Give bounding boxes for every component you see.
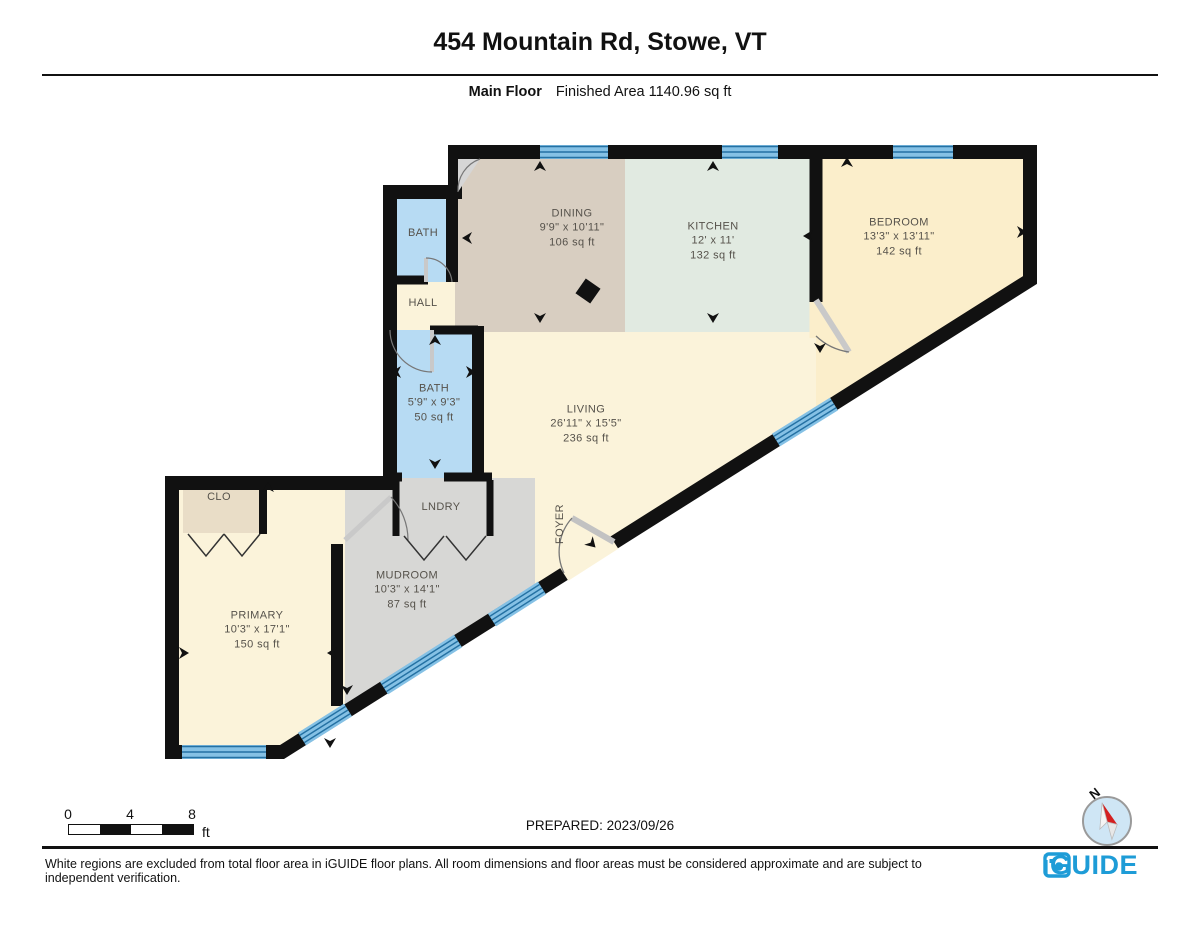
room-dims: 10'3" x 17'1" <box>224 623 290 637</box>
room-name: KITCHEN <box>687 220 738 234</box>
room-label-foyer: FOYER <box>553 504 567 544</box>
room-area: 142 sq ft <box>863 244 934 258</box>
room-area: 132 sq ft <box>687 248 738 262</box>
room-label-kitchen: KITCHEN 12' x 11' 132 sq ft <box>687 220 738 263</box>
room-label-mudroom: MUDROOM 10'3" x 14'1" 87 sq ft <box>374 569 440 612</box>
room-name: PRIMARY <box>224 609 290 623</box>
room-dims: 5'9" x 9'3" <box>408 396 461 410</box>
room-name: LNDRY <box>421 500 460 514</box>
room-dims: 26'11" x 15'5" <box>550 417 621 431</box>
room-dims: 9'9" x 10'11" <box>540 221 605 235</box>
room-name: LIVING <box>550 403 621 417</box>
room-name: CLO <box>207 490 231 504</box>
scale-tick-8: 8 <box>188 806 196 822</box>
scale-tick-labels: 0 4 8 <box>60 806 220 822</box>
compass-icon <box>1083 797 1131 845</box>
room-label-dining: DINING 9'9" x 10'11" 106 sq ft <box>540 207 605 250</box>
scale-unit: ft <box>202 824 210 840</box>
room-area: 50 sq ft <box>408 410 461 424</box>
floor-plan-svg <box>0 0 1200 927</box>
room-label-bedroom: BEDROOM 13'3" x 13'11" 142 sq ft <box>863 216 934 259</box>
room-area: 87 sq ft <box>374 597 440 611</box>
scale-tick-4: 4 <box>126 806 134 822</box>
window-primary <box>182 745 266 759</box>
room-label-bath-upper: BATH <box>408 226 438 240</box>
room-name: BATH <box>408 226 438 240</box>
room-area: 150 sq ft <box>224 637 290 651</box>
room-name: MUDROOM <box>374 569 440 583</box>
room-label-closet: CLO <box>207 490 231 504</box>
room-name: HALL <box>408 296 437 310</box>
room-area: 236 sq ft <box>550 431 621 445</box>
scale-bar-graphic <box>68 824 194 835</box>
room-dims: 13'3" x 13'11" <box>863 230 934 244</box>
room-dims: 10'3" x 14'1" <box>374 583 440 597</box>
iguide-logo-icon <box>1042 850 1072 880</box>
scale-tick-0: 0 <box>64 806 72 822</box>
footer-divider <box>42 846 1158 849</box>
room-label-laundry: LNDRY <box>421 500 460 514</box>
floor-plan-page: 454 Mountain Rd, Stowe, VT Main FloorFin… <box>0 0 1200 927</box>
room-name: FOYER <box>553 504 567 544</box>
bedroom-region <box>816 150 1030 415</box>
prepared-date: PREPARED: 2023/09/26 <box>400 818 800 833</box>
room-dims: 12' x 11' <box>687 234 738 248</box>
footer-disclaimer: White regions are excluded from total fl… <box>45 857 965 885</box>
room-area: 106 sq ft <box>540 235 605 249</box>
iguide-logo: iGUIDE <box>1042 850 1138 881</box>
room-name: BEDROOM <box>863 216 934 230</box>
room-label-bath-main: BATH 5'9" x 9'3" 50 sq ft <box>408 382 461 425</box>
room-name: DINING <box>540 207 605 221</box>
room-label-hall: HALL <box>408 296 437 310</box>
room-name: BATH <box>408 382 461 396</box>
room-label-primary: PRIMARY 10'3" x 17'1" 150 sq ft <box>224 609 290 652</box>
room-label-living: LIVING 26'11" x 15'5" 236 sq ft <box>550 403 621 446</box>
